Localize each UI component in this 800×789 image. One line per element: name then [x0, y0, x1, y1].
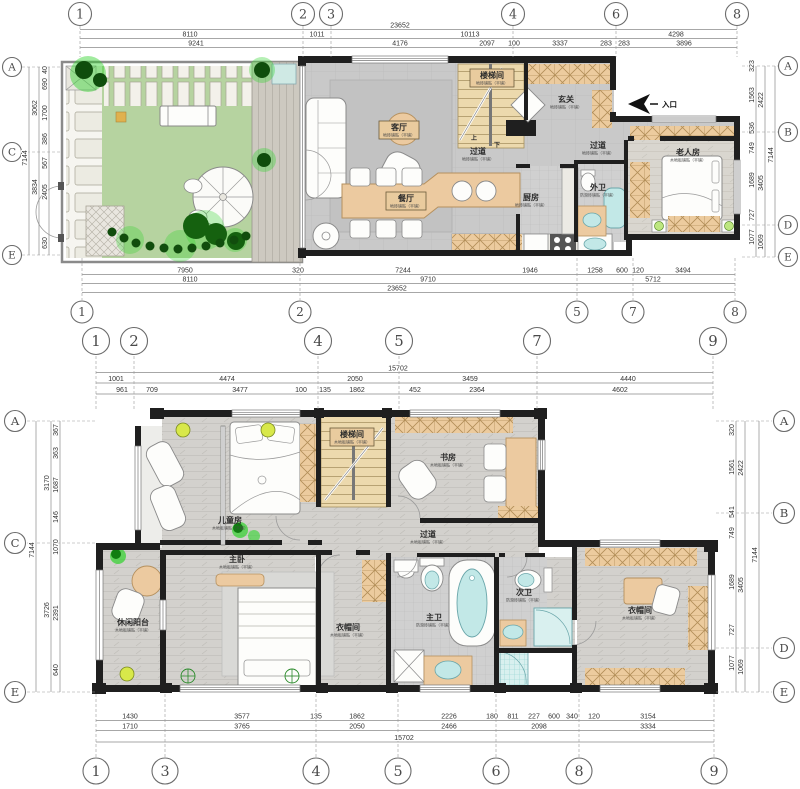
- garden-gate: [36, 182, 64, 242]
- dimension-label: 1561: [729, 459, 736, 475]
- svg-text:4: 4: [311, 764, 320, 780]
- svg-text:次卫: 次卫: [516, 587, 532, 597]
- svg-text:木地板铺贴（平铺）: 木地板铺贴（平铺）: [212, 525, 248, 531]
- shoe-cabinet: [592, 90, 612, 128]
- svg-text:1: 1: [78, 305, 86, 319]
- floor2-house: [92, 408, 718, 694]
- svg-text:餐厅: 餐厅: [397, 193, 414, 203]
- low-cabinet: [498, 506, 538, 518]
- svg-text:厨房: 厨房: [523, 192, 539, 202]
- svg-text:主卫: 主卫: [426, 612, 442, 622]
- room-label-餐厅: 餐厅地砖铺贴（平铺）: [386, 192, 426, 210]
- dimension-label: 1069: [758, 234, 765, 250]
- room-label-休闲阳台: 休闲阳台木地板铺贴（平铺）: [115, 617, 151, 633]
- dimension-label: 3405: [738, 577, 745, 593]
- dimension-label: 5712: [645, 277, 661, 284]
- dimension-label: 3062: [32, 100, 39, 116]
- room-label-上: 上: [471, 134, 477, 142]
- svg-text:过道: 过道: [590, 140, 606, 150]
- round-table: [132, 566, 162, 596]
- svg-text:木地板铺贴（平铺）: 木地板铺贴（平铺）: [330, 632, 366, 638]
- bar-stool: [476, 181, 496, 201]
- dimension-label: 120: [632, 268, 644, 275]
- dimension-label: 3154: [640, 714, 656, 721]
- svg-text:防滑砖铺贴（平铺）: 防滑砖铺贴（平铺）: [580, 192, 616, 198]
- desk-chair: [484, 444, 506, 470]
- tv-console: [216, 574, 264, 586]
- dimension-label: 4440: [620, 376, 636, 383]
- grid-bubble-2: 2: [292, 3, 315, 26]
- dimension-label: 4298: [668, 32, 684, 39]
- grid-bubble-1: 1: [83, 758, 109, 784]
- dimension-label: 367: [53, 424, 60, 436]
- dimension-label: 10113: [461, 32, 480, 39]
- dining-chair: [376, 220, 396, 238]
- svg-text:楼梯间: 楼梯间: [340, 429, 364, 439]
- dimension-label: 961: [116, 387, 128, 394]
- room-label-客厅: 客厅地砖铺贴（平铺）: [379, 121, 419, 139]
- svg-text:A: A: [10, 414, 20, 428]
- ceiling-fixture: [176, 423, 190, 437]
- svg-text:过道: 过道: [470, 146, 486, 156]
- dimension-label: 1011: [309, 32, 324, 39]
- svg-text:儿童房: 儿童房: [217, 515, 242, 525]
- dimension-label: 811: [507, 714, 518, 721]
- dimension-label: 2422: [758, 92, 765, 108]
- basin: [503, 625, 523, 639]
- svg-text:下: 下: [494, 142, 500, 149]
- dimension-label: 100: [508, 41, 520, 48]
- svg-text:4: 4: [313, 332, 322, 350]
- grid-bubble-8: 8: [726, 3, 749, 26]
- dimension-label: 146: [53, 511, 60, 523]
- floor-lamp: [313, 223, 339, 249]
- dimension-label: 3405: [758, 175, 765, 191]
- svg-text:2: 2: [129, 332, 138, 350]
- grid-bubble-7: 7: [524, 328, 551, 355]
- grid-bubble-A: A: [779, 57, 798, 76]
- svg-text:客厅: 客厅: [390, 122, 407, 132]
- svg-text:木地板铺贴（平铺）: 木地板铺贴（平铺）: [670, 157, 706, 163]
- lamp: [655, 222, 664, 231]
- dimension-label: 2050: [349, 724, 365, 731]
- dimension-label: 3494: [675, 268, 691, 275]
- dining-chair: [350, 220, 370, 238]
- svg-text:D: D: [784, 220, 792, 232]
- desk-chair: [484, 476, 506, 502]
- dimension-label: 386: [42, 133, 49, 145]
- dimension-label: 2466: [441, 724, 457, 731]
- grid-bubble-B: B: [779, 123, 798, 142]
- closet2-cabinet-bottom: [585, 668, 685, 686]
- svg-text:衣帽间: 衣帽间: [336, 622, 360, 632]
- grid-bubble-D: D: [774, 638, 795, 659]
- svg-text:地砖铺贴（平铺）: 地砖铺贴（平铺）: [390, 203, 422, 209]
- svg-text:主卧: 主卧: [229, 554, 245, 564]
- svg-text:2: 2: [296, 305, 304, 319]
- dimension-label: 9710: [420, 277, 436, 284]
- grid-bubble-C: C: [3, 143, 22, 162]
- grid-bubble-4: 4: [303, 758, 329, 784]
- grid-bubble-4: 4: [502, 3, 525, 26]
- svg-text:地砖铺贴（平铺）: 地砖铺贴（平铺）: [476, 80, 508, 86]
- dimension-label: 2422: [738, 460, 745, 476]
- deck-pad: [272, 64, 296, 84]
- dimension-label: 749: [729, 527, 736, 539]
- dimension-label: 227: [528, 714, 540, 721]
- dimension-label: 7144: [752, 547, 759, 563]
- dimension-label: 2226: [441, 714, 457, 721]
- dimension-label: 1862: [349, 714, 365, 721]
- dimension-label: 1069: [738, 659, 745, 675]
- closet1-furniture: [362, 560, 386, 602]
- floor-plan-svg: 12346812578ACEABDE1245791345689ACEABDE 2…: [0, 0, 800, 789]
- svg-text:2: 2: [299, 6, 307, 21]
- closet2-cabinet-right: [688, 586, 708, 650]
- grid-bubble-D: D: [779, 216, 798, 235]
- dimension-label: 9241: [188, 41, 204, 48]
- grid-bubble-9: 9: [700, 328, 727, 355]
- bed-bench: [668, 216, 720, 232]
- dimension-label: 1077: [749, 229, 756, 245]
- floor-plan-canvas: 12346812578ACEABDE1245791345689ACEABDE 2…: [0, 0, 800, 789]
- dimension-label: 3896: [676, 41, 692, 48]
- dimension-label: 135: [319, 387, 331, 394]
- svg-text:E: E: [784, 252, 792, 264]
- svg-text:地砖铺贴（平铺）: 地砖铺贴（平铺）: [550, 104, 582, 110]
- floor1-garden: [36, 56, 302, 262]
- grid-bubble-4: 4: [305, 328, 332, 355]
- lamp: [725, 222, 734, 231]
- herringbone-paving: [86, 206, 124, 256]
- grid-bubble-2: 2: [289, 301, 311, 323]
- dimension-label: 3765: [234, 724, 250, 731]
- dimension-label: 3459: [462, 376, 478, 383]
- dimension-label: 1689: [729, 574, 736, 590]
- dimension-label: 4474: [219, 376, 235, 383]
- room-label-楼梯间: 楼梯间木地板铺贴（平铺）: [330, 428, 374, 446]
- dimension-label: 2405: [42, 184, 49, 200]
- shower: [534, 608, 572, 646]
- svg-text:3: 3: [160, 764, 169, 780]
- grid-bubble-A: A: [5, 411, 26, 432]
- plank-path: [104, 66, 252, 106]
- garden-marker: [116, 112, 126, 122]
- svg-text:A: A: [783, 61, 792, 73]
- svg-text:玄关: 玄关: [558, 94, 574, 104]
- dimension-label: 630: [42, 237, 49, 249]
- svg-text:C: C: [11, 536, 20, 550]
- grid-bubble-8: 8: [724, 301, 746, 323]
- entry-arrow: [628, 94, 658, 114]
- dining-chair: [402, 220, 422, 238]
- dimension-label: 541: [729, 506, 736, 518]
- dimension-label: 3334: [640, 724, 656, 731]
- ceiling-fixture: [120, 667, 134, 681]
- dimension-label: 320: [729, 424, 736, 436]
- dimension-label: 727: [749, 209, 756, 221]
- svg-text:E: E: [780, 685, 788, 699]
- svg-text:书房: 书房: [440, 452, 456, 462]
- dimension-label: 1258: [587, 268, 603, 275]
- dimension-label: 1563: [749, 87, 756, 103]
- dimension-label: 7144: [22, 150, 29, 166]
- svg-text:木地板铺贴（平铺）: 木地板铺贴（平铺）: [115, 627, 151, 633]
- grid-bubble-1: 1: [71, 301, 93, 323]
- dimension-label: 8110: [182, 277, 197, 284]
- dimension-label: 3577: [234, 714, 250, 721]
- dimension-label: 120: [588, 714, 600, 721]
- svg-text:楼梯间: 楼梯间: [480, 70, 504, 80]
- basin: [435, 661, 461, 679]
- dimension-label: 600: [548, 714, 560, 721]
- grid-bubble-5: 5: [566, 301, 588, 323]
- grid-bubble-3: 3: [320, 3, 343, 26]
- entry-cabinet: [528, 64, 612, 84]
- dimension-label: 7950: [177, 268, 193, 275]
- svg-text:B: B: [780, 506, 789, 520]
- dimension-label: 3170: [44, 475, 51, 491]
- grid-bubble-1: 1: [83, 328, 110, 355]
- grid-bubble-3: 3: [152, 758, 178, 784]
- svg-text:8: 8: [574, 764, 583, 780]
- svg-text:B: B: [784, 127, 792, 139]
- grid-bubble-5: 5: [386, 328, 413, 355]
- svg-text:D: D: [779, 641, 788, 655]
- svg-text:7: 7: [629, 305, 637, 319]
- grid-bubble-2: 2: [121, 328, 148, 355]
- kids-wardrobe: [300, 424, 318, 502]
- closet1-cabinet: [362, 560, 386, 602]
- svg-text:C: C: [8, 147, 16, 159]
- grid-bubble-9: 9: [701, 758, 727, 784]
- garden-bench: [160, 106, 216, 126]
- dimension-label: 1001: [108, 376, 124, 383]
- dimension-label: 567: [42, 157, 49, 169]
- svg-text:防滑砖铺贴（平铺）: 防滑砖铺贴（平铺）: [506, 597, 542, 603]
- svg-text:4: 4: [509, 6, 517, 21]
- dimension-label: 536: [749, 122, 756, 134]
- dimension-label: 135: [310, 714, 322, 721]
- svg-text:8: 8: [731, 305, 739, 319]
- svg-text:6: 6: [612, 6, 620, 21]
- grid-bubble-8: 8: [566, 758, 592, 784]
- stair-wall-block: [506, 120, 536, 136]
- dimension-label: 640: [53, 664, 60, 676]
- grid-bubble-5: 5: [385, 758, 411, 784]
- grid-bubble-E: E: [5, 682, 26, 703]
- bedroom1-wardrobe: [630, 162, 650, 218]
- dimension-label: 4602: [612, 387, 628, 394]
- shower-pan: [500, 650, 528, 686]
- svg-text:8: 8: [733, 6, 741, 21]
- dimension-label: 2364: [469, 387, 485, 394]
- svg-text:5: 5: [394, 332, 403, 350]
- svg-text:1: 1: [91, 332, 100, 350]
- grid-bubble-7: 7: [622, 301, 644, 323]
- grid-bubble-6: 6: [483, 758, 509, 784]
- svg-text:过道: 过道: [420, 529, 436, 539]
- dimension-label: 1946: [522, 268, 538, 275]
- bar-stool: [452, 181, 472, 201]
- dimension-label: 340: [566, 714, 578, 721]
- dimension-label: 180: [486, 714, 498, 721]
- grid-bubble-1: 1: [69, 3, 92, 26]
- svg-text:木地板铺贴（平铺）: 木地板铺贴（平铺）: [410, 539, 446, 545]
- dimension-label: 40: [42, 66, 49, 74]
- svg-text:老人房: 老人房: [675, 147, 700, 157]
- svg-text:E: E: [8, 250, 16, 262]
- dimension-label: 2391: [53, 605, 60, 621]
- desk: [506, 438, 536, 510]
- dimension-label: 600: [616, 268, 628, 275]
- dimension-label: 100: [295, 387, 307, 394]
- dimension-label: 23652: [390, 23, 410, 30]
- dimension-label: 283: [600, 41, 612, 48]
- svg-text:地砖铺贴（平铺）: 地砖铺贴（平铺）: [582, 150, 614, 156]
- svg-text:9: 9: [708, 332, 717, 350]
- dimension-label: 727: [729, 624, 736, 636]
- svg-text:6: 6: [491, 764, 500, 780]
- svg-text:3: 3: [327, 6, 335, 21]
- svg-text:休闲阳台: 休闲阳台: [116, 617, 149, 627]
- dining-chair: [376, 168, 396, 186]
- dimension-label: 8110: [182, 32, 197, 39]
- dimension-label: 1710: [122, 724, 138, 731]
- dimension-label: 1689: [749, 172, 756, 188]
- svg-text:地砖铺贴（平铺）: 地砖铺贴（平铺）: [383, 132, 415, 138]
- svg-text:木地板铺贴（平铺）: 木地板铺贴（平铺）: [622, 615, 658, 621]
- dimension-label: 1862: [349, 387, 365, 394]
- grid-bubble-E: E: [3, 246, 22, 265]
- svg-text:上: 上: [471, 134, 477, 142]
- svg-text:木地板铺贴（平铺）: 木地板铺贴（平铺）: [334, 439, 370, 445]
- svg-text:9: 9: [709, 764, 718, 780]
- dining-chair: [350, 168, 370, 186]
- dimension-label: 2050: [347, 376, 363, 383]
- svg-text:1: 1: [76, 6, 84, 21]
- dimension-label: 1070: [53, 539, 60, 555]
- svg-text:地砖铺贴（平铺）: 地砖铺贴（平铺）: [515, 202, 547, 208]
- dimension-label: 363: [53, 447, 60, 459]
- ceiling-fixture: [261, 423, 275, 437]
- dimension-label: 323: [749, 60, 756, 72]
- svg-text:木地板铺贴（平铺）: 木地板铺贴（平铺）: [430, 462, 466, 468]
- svg-text:E: E: [11, 685, 19, 699]
- grid-bubble-A: A: [774, 411, 795, 432]
- grid-bubble-E: E: [779, 248, 798, 267]
- closet2-cabinet-top: [585, 548, 697, 566]
- dimension-label: 23652: [387, 286, 407, 293]
- wall-sink: [394, 560, 418, 572]
- svg-text:A: A: [7, 62, 16, 74]
- dimension-label: 452: [409, 387, 421, 394]
- dimension-label: 15702: [388, 366, 408, 373]
- svg-text:7: 7: [532, 332, 541, 350]
- room-label-楼梯间: 楼梯间地砖铺贴（平铺）: [470, 69, 514, 87]
- dining-chair: [402, 168, 422, 186]
- grid-bubble-A: A: [3, 58, 22, 77]
- basin: [583, 213, 601, 227]
- dimension-label: 1077: [729, 655, 736, 671]
- study-cabinet: [395, 417, 513, 433]
- dimension-label: 3477: [232, 387, 248, 394]
- dimension-label: 7144: [29, 542, 36, 558]
- dimension-label: 4176: [392, 41, 408, 48]
- entry-label: 入口: [661, 100, 677, 109]
- grid-bubble-C: C: [5, 533, 26, 554]
- svg-text:地砖铺贴（平铺）: 地砖铺贴（平铺）: [462, 156, 494, 162]
- dimension-label: 2098: [531, 724, 547, 731]
- dimension-label: 1700: [42, 105, 49, 121]
- dimension-label: 15702: [394, 735, 414, 742]
- svg-text:木地板铺贴（平铺）: 木地板铺贴（平铺）: [219, 564, 255, 570]
- dimension-label: 749: [749, 142, 756, 154]
- room-label-下: 下: [494, 142, 500, 149]
- dimension-label: 690: [42, 78, 49, 90]
- grid-bubble-6: 6: [605, 3, 628, 26]
- svg-text:外卫: 外卫: [590, 182, 606, 192]
- svg-text:1: 1: [91, 764, 100, 780]
- svg-text:5: 5: [393, 764, 402, 780]
- dimension-label: 2097: [479, 41, 495, 48]
- dimension-label: 7144: [768, 147, 775, 163]
- svg-text:A: A: [779, 414, 789, 428]
- dimension-label: 3726: [44, 602, 51, 618]
- svg-text:衣帽间: 衣帽间: [628, 605, 652, 615]
- dimension-label: 1687: [53, 477, 60, 493]
- dimension-label: 3337: [552, 41, 568, 48]
- plant: [111, 549, 121, 559]
- dimension-label: 283: [618, 41, 630, 48]
- kitchen-sink: [584, 238, 606, 250]
- svg-text:防滑砖铺贴（平铺）: 防滑砖铺贴（平铺）: [416, 622, 452, 628]
- dimension-label: 320: [292, 268, 304, 275]
- dimension-label: 7244: [395, 268, 411, 275]
- grid-bubble-B: B: [774, 503, 795, 524]
- grid-bubble-E: E: [774, 682, 795, 703]
- dimension-label: 3834: [32, 179, 39, 195]
- svg-text:5: 5: [573, 305, 581, 319]
- dimension-label: 1430: [122, 714, 138, 721]
- dimension-label: 709: [146, 387, 158, 394]
